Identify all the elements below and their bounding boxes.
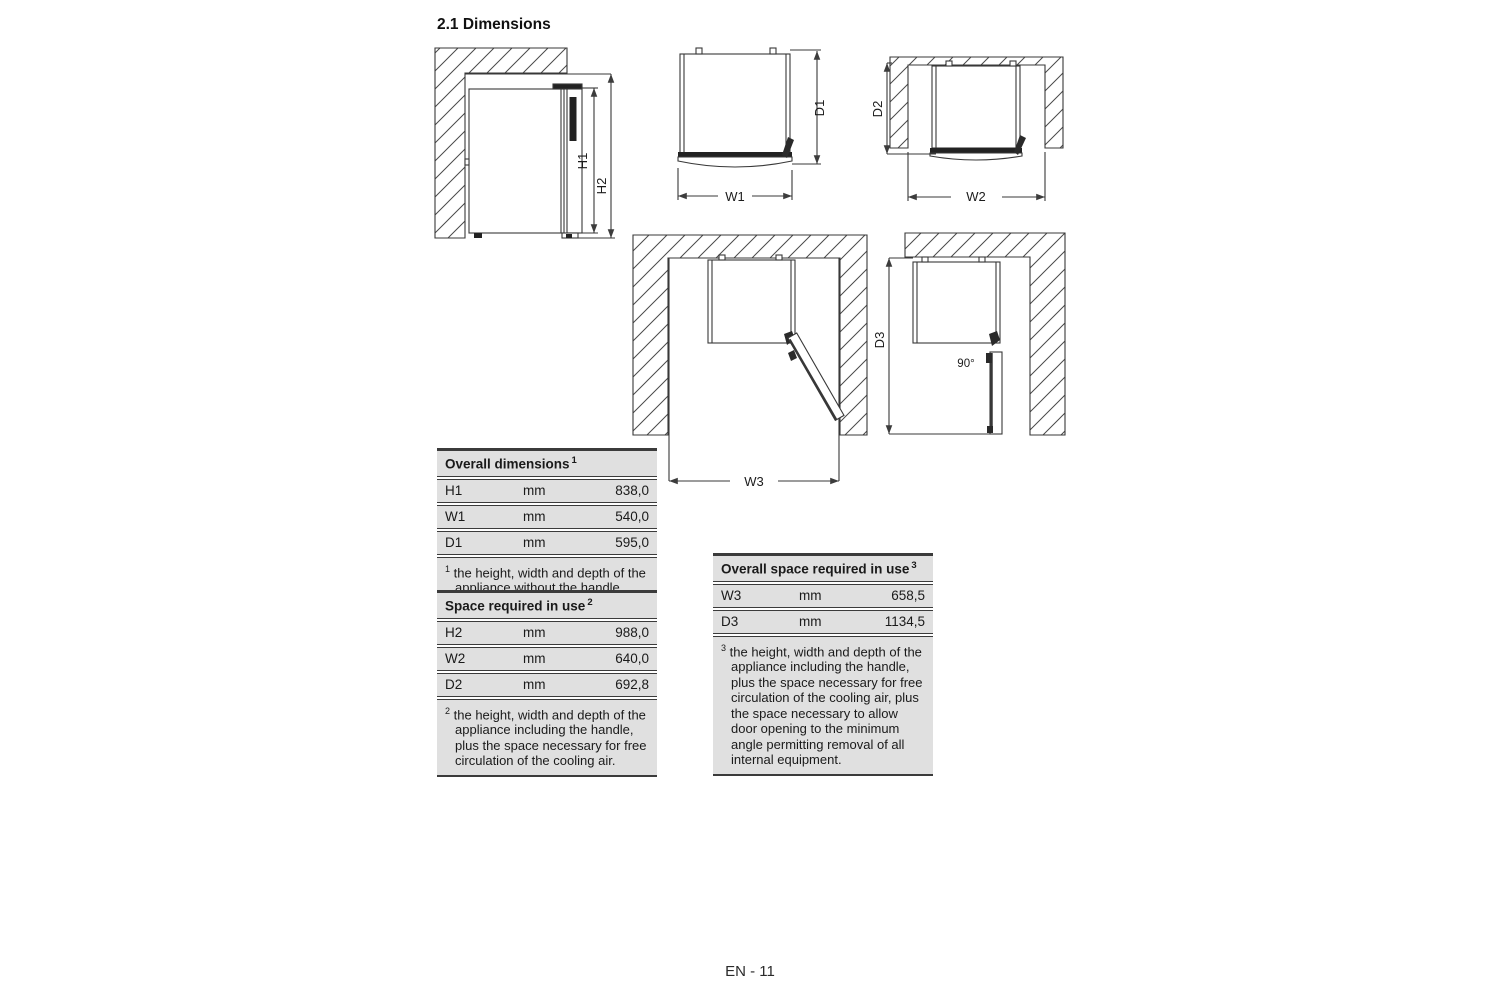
fridge-foot: [474, 233, 482, 238]
footnote-text: the height, width and depth of the appli…: [730, 644, 923, 768]
footnote-ref: 2: [445, 706, 450, 716]
dimension-code: W1: [445, 509, 523, 524]
footnote-ref: 1: [445, 564, 450, 574]
dim-label-h1: H1: [575, 153, 590, 170]
footnote-ref: 3: [721, 643, 726, 653]
dim-label-w1: W1: [725, 189, 745, 204]
dimension-value: 658,5: [891, 588, 925, 603]
top-view-diagram: [678, 48, 821, 200]
fridge-body: [680, 54, 790, 153]
door-top-cap: [553, 84, 582, 89]
table-footnote: 2 the height, width and depth of the app…: [437, 699, 657, 777]
table-row: H1 mm 838,0: [437, 479, 657, 503]
door-bottom-cap: [987, 426, 993, 433]
footnote-text: the height, width and depth of the appli…: [454, 707, 647, 769]
table-title-footnote-ref: 1: [572, 455, 577, 466]
fridge-body: [469, 89, 564, 233]
dimension-unit: mm: [523, 535, 615, 550]
dimension-value: 692,8: [615, 677, 649, 692]
hinge-tab: [770, 48, 776, 54]
dim-label-w3: W3: [744, 474, 764, 489]
dimension-value: 988,0: [615, 625, 649, 640]
table-row: W3 mm 658,5: [713, 584, 933, 608]
table-title: Overall space required in use3: [713, 553, 933, 582]
table-title: Space required in use2: [437, 590, 657, 619]
dimension-code: W2: [445, 651, 523, 666]
table-footnote: 3 the height, width and depth of the app…: [713, 636, 933, 776]
fridge-body: [708, 260, 795, 343]
page-number: EN - 11: [0, 963, 1500, 980]
dimension-code: D1: [445, 535, 523, 550]
side-view-diagram: [435, 48, 615, 238]
open-door-top-view-diagram: [633, 235, 867, 481]
hinge-tab: [719, 255, 725, 260]
dim-label-d2: D2: [870, 101, 885, 118]
dim-label-d1: D1: [812, 100, 827, 117]
door-angle-label: 90°: [957, 358, 974, 370]
table-row: D2 mm 692,8: [437, 673, 657, 697]
table-title-footnote-ref: 3: [911, 560, 916, 571]
alcove-top-view-diagram: [887, 57, 1063, 201]
table-row: D3 mm 1134,5: [713, 610, 933, 634]
table-row: D1 mm 595,0: [437, 531, 657, 555]
door-handle: [570, 97, 577, 141]
dimension-unit: mm: [799, 588, 891, 603]
dimension-code: D3: [721, 614, 799, 629]
dimension-value: 1134,5: [885, 614, 925, 629]
table-title-text: Overall space required in use: [721, 562, 909, 577]
hinge-tab: [1010, 61, 1016, 66]
table-title-text: Space required in use: [445, 599, 585, 614]
dimension-unit: mm: [523, 651, 615, 666]
table-row: W2 mm 640,0: [437, 647, 657, 671]
dimension-unit: mm: [523, 483, 615, 498]
dimension-value: 540,0: [615, 509, 649, 524]
hinge-tab: [776, 255, 782, 260]
hinge-tab: [922, 257, 928, 262]
dimension-code: W3: [721, 588, 799, 603]
door-handle: [986, 353, 992, 363]
hinge-tab: [696, 48, 702, 54]
space-required-table: Space required in use2 H2 mm 988,0 W2 mm…: [437, 590, 657, 777]
dimension-unit: mm: [523, 509, 615, 524]
dim-label-h2: H2: [594, 178, 609, 195]
open-door-panel: [788, 333, 844, 420]
dim-label-d3: D3: [872, 332, 887, 349]
dimension-unit: mm: [523, 677, 615, 692]
dimension-diagrams: H1 H2 D1 W1: [430, 40, 1080, 492]
hinge-tab: [979, 257, 985, 262]
dimension-unit: mm: [799, 614, 885, 629]
dimension-code: H1: [445, 483, 523, 498]
door-edge: [790, 340, 837, 420]
table-title-text: Overall dimensions: [445, 457, 570, 472]
dimension-code: H2: [445, 625, 523, 640]
dimension-code: D2: [445, 677, 523, 692]
door-bar: [678, 152, 792, 157]
fridge-foot: [566, 234, 572, 238]
dimension-value: 640,0: [615, 651, 649, 666]
table-title: Overall dimensions1: [437, 448, 657, 477]
dimension-unit: mm: [523, 625, 615, 640]
wall-spacer: [465, 159, 469, 165]
table-row: W1 mm 540,0: [437, 505, 657, 529]
overall-dimensions-table: Overall dimensions1 H1 mm 838,0 W1 mm 54…: [437, 448, 657, 604]
table-title-footnote-ref: 2: [587, 597, 592, 608]
door-front: [930, 153, 1022, 160]
dimension-value: 838,0: [615, 483, 649, 498]
door-bar: [930, 148, 1022, 153]
door-90-top-view-diagram: [889, 233, 1065, 435]
door-front: [678, 157, 792, 167]
overall-space-required-table: Overall space required in use3 W3 mm 658…: [713, 553, 933, 776]
dimension-value: 595,0: [615, 535, 649, 550]
fridge-body: [913, 262, 1000, 343]
manual-page: 2.1 Dimensions: [0, 0, 1500, 1000]
dim-label-w2: W2: [966, 189, 986, 204]
fridge-body: [932, 66, 1020, 148]
hinge-tab: [946, 61, 952, 66]
page-title: 2.1 Dimensions: [437, 16, 551, 34]
table-row: H2 mm 988,0: [437, 621, 657, 645]
